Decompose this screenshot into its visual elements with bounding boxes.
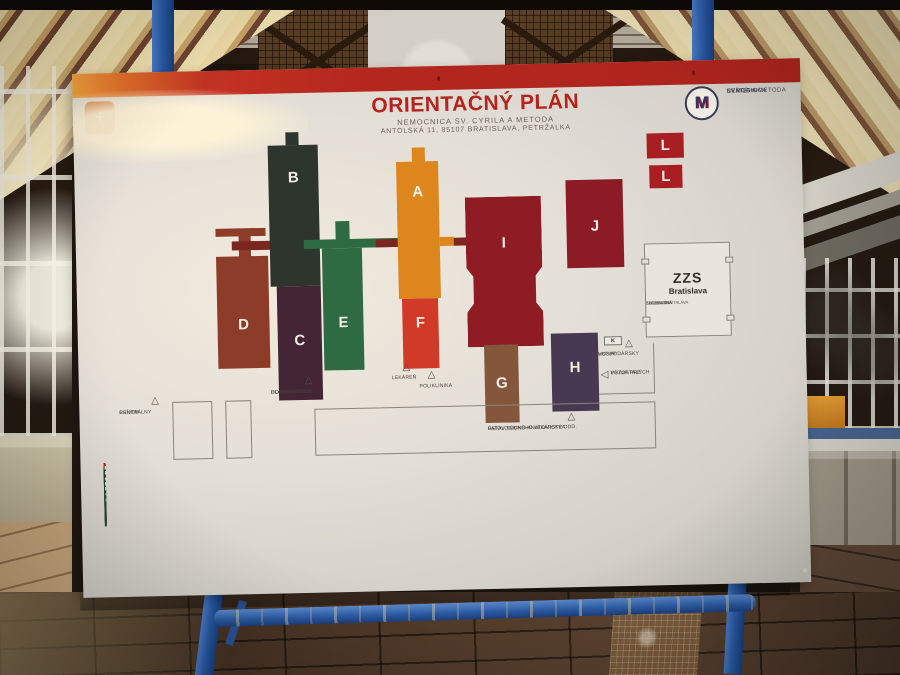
screw <box>692 70 695 75</box>
concrete-planter-right <box>800 451 900 545</box>
concrete-planter-left <box>0 436 72 524</box>
entrance-triangle-icon: △ <box>625 339 633 349</box>
building-A-chimney <box>412 147 425 161</box>
window-sill <box>800 428 900 439</box>
building-H: H <box>551 333 600 412</box>
photo-scene: + NEMOCNICA ORIENTAČNÝ PLÁN NEMOCNICA SV… <box>0 0 900 675</box>
building-letter: F <box>402 314 438 332</box>
label-line: DO NEMOCNICE <box>271 389 313 396</box>
label-line: POZOSTALÝCH <box>611 369 650 376</box>
building-A-wing <box>440 237 454 246</box>
right-logo-line: CYRILA A METODA <box>726 87 786 96</box>
building-letter: L <box>647 137 684 155</box>
building-letter: B <box>268 169 318 187</box>
entrance-label-pharmacy: LEKÁREŇ <box>377 374 432 382</box>
zzs-station: ZZS Bratislava ZÁCHRANNÁ ZDRAVOTNÁ SLUŽB… <box>644 242 732 338</box>
zzs-caption-line: SLUŽBA BRATISLAVA <box>646 300 688 307</box>
window-wall-left <box>0 66 72 438</box>
entrance-triangle-icon: △ <box>151 396 159 406</box>
building-letter: E <box>323 314 363 332</box>
legend-footnote: D <box>803 568 807 574</box>
building-C: C <box>277 286 323 401</box>
building-letter: H <box>551 359 598 377</box>
entrance-triangle-icon: △ <box>305 376 313 386</box>
orientation-sign-board: + NEMOCNICA ORIENTAČNÝ PLÁN NEMOCNICA SV… <box>72 58 811 598</box>
floor-left <box>0 522 72 600</box>
building-D: D <box>216 256 270 369</box>
connector-bar <box>376 239 400 248</box>
building-letter: D <box>217 316 269 334</box>
lit-window <box>803 396 845 428</box>
building-A: A <box>396 161 441 299</box>
building-B-chimney <box>285 132 298 145</box>
entrance-triangle-icon: △ <box>428 370 436 380</box>
building-L1: L <box>646 133 684 159</box>
entrance-triangle-icon: △ <box>402 363 410 373</box>
zzs-city: Bratislava <box>646 286 730 297</box>
walkway-outline <box>225 400 252 459</box>
building-letter: I <box>466 234 542 253</box>
building-L2: L <box>649 165 682 189</box>
building-letter: A <box>396 183 438 201</box>
building-I: I <box>465 196 544 348</box>
entrance-label-policlinic: POLIKLINIKA <box>401 382 471 390</box>
walkway-outline <box>314 401 656 455</box>
screw <box>437 76 440 81</box>
window-ledge <box>800 439 900 451</box>
label-line: PRÍJEM <box>119 410 139 417</box>
zzs-notch <box>725 257 733 263</box>
building-letter: C <box>278 332 322 350</box>
building-letter: G <box>485 374 519 392</box>
ceiling-beam-top <box>0 0 900 10</box>
entrance-triangle-icon: ◁ <box>601 370 609 380</box>
hospital-logo-right: M <box>684 86 719 121</box>
zzs-title: ZZS <box>645 269 729 287</box>
legend-column: 1AmbulancieBlok GNemocničná lekáreňBlok … <box>104 461 227 594</box>
entrance-triangle-icon: △ <box>567 412 575 422</box>
legend-panel: 1AmbulancieBlok GNemocničná lekáreňBlok … <box>104 463 106 466</box>
walkway-outline <box>172 401 213 460</box>
zzs-notch <box>726 315 734 321</box>
legend-entry-text: Sklady <box>105 465 106 466</box>
zzs-notch <box>642 316 650 322</box>
zzs-notch <box>641 258 649 264</box>
right-logo-text: NEMOCNICA SVÄTÉHO CYRILA A METODA <box>726 87 806 89</box>
building-F: F <box>402 298 440 369</box>
label-line: VSTUP <box>598 351 616 358</box>
zzs-caption: ZÁCHRANNÁ ZDRAVOTNÁ SLUŽBA BRATISLAVA <box>646 299 730 301</box>
legend: Blok Aposchodie-1Technické priestory nem… <box>104 448 812 593</box>
building-letter: L <box>649 168 682 186</box>
building-J: J <box>565 179 624 268</box>
building-E: E <box>322 248 365 371</box>
building-B: B <box>268 145 321 287</box>
building-letter: J <box>566 217 623 235</box>
